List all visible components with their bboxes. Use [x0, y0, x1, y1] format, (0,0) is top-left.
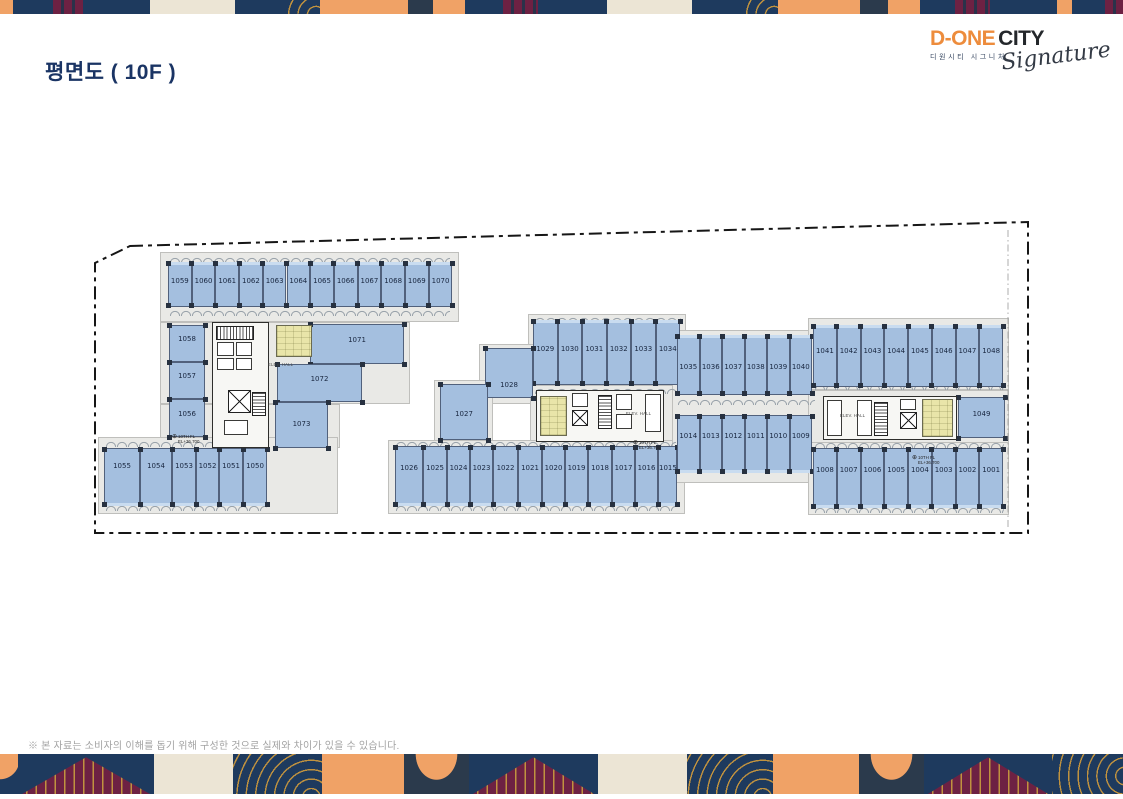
- column: [586, 502, 591, 507]
- unit-label: 1069: [406, 278, 428, 285]
- column: [675, 469, 680, 474]
- unit-label: 1059: [169, 278, 191, 285]
- level-marker: ⊕10TH FLEL+36.700: [912, 455, 958, 467]
- column: [858, 447, 863, 452]
- column: [953, 504, 958, 509]
- column: [653, 319, 658, 324]
- column: [170, 502, 175, 507]
- unit-1040: 1040: [790, 335, 813, 395]
- column: [421, 502, 426, 507]
- elevator-shaft: [572, 410, 588, 426]
- column: [450, 303, 455, 308]
- column: [167, 397, 172, 402]
- unit-label: 1061: [216, 278, 238, 285]
- unit-label: 1016: [636, 465, 657, 472]
- column: [656, 502, 661, 507]
- unit-1052: 1052: [196, 448, 219, 506]
- column: [810, 391, 815, 396]
- unit-1055: 1055: [104, 448, 140, 506]
- unit-label: 1042: [838, 348, 860, 355]
- unit-label: 1019: [566, 465, 587, 472]
- unit-1057: 1057: [169, 362, 205, 399]
- column: [260, 303, 265, 308]
- level-marker-text: 10TH FLEL+36.700: [639, 440, 660, 452]
- column: [882, 504, 887, 509]
- column: [167, 323, 172, 328]
- restroom: [922, 399, 953, 437]
- column: [929, 324, 934, 329]
- unit-label: 1027: [441, 411, 487, 418]
- unit-1026: 1026: [395, 446, 423, 506]
- unit-1017: 1017: [612, 446, 635, 506]
- column: [355, 261, 360, 266]
- unit-1067: 1067: [358, 262, 382, 307]
- column: [555, 319, 560, 324]
- column: [166, 303, 171, 308]
- unit-label: 1049: [959, 411, 1004, 418]
- unit-1031: 1031: [582, 320, 607, 385]
- elevator-shaft: [228, 390, 251, 413]
- core-room: [217, 342, 234, 356]
- column: [468, 502, 473, 507]
- column: [426, 261, 431, 266]
- column: [697, 414, 702, 419]
- column: [675, 334, 680, 339]
- column: [882, 447, 887, 452]
- column: [393, 445, 398, 450]
- unit-label: 1022: [494, 465, 517, 472]
- column: [906, 504, 911, 509]
- unit-label: 1007: [838, 467, 860, 474]
- unit-1019: 1019: [565, 446, 588, 506]
- unit-label: 1014: [678, 433, 699, 440]
- column: [765, 469, 770, 474]
- unit-1039: 1039: [767, 335, 790, 395]
- unit-1010: 1010: [767, 415, 790, 473]
- unit-1053: 1053: [172, 448, 196, 506]
- column: [811, 324, 816, 329]
- column: [468, 445, 473, 450]
- unit-label: 1070: [430, 278, 452, 285]
- unit-1056: 1056: [169, 399, 205, 437]
- core-room: [236, 342, 252, 356]
- unit-label: 1011: [746, 433, 767, 440]
- column: [953, 324, 958, 329]
- unit-label: 1002: [957, 467, 979, 474]
- unit-label: 1044: [885, 348, 907, 355]
- door-arcs: [678, 398, 815, 405]
- unit-label: 1048: [980, 348, 1002, 355]
- unit-label: 1040: [791, 364, 812, 371]
- column: [438, 438, 443, 443]
- column: [265, 502, 270, 507]
- unit-1018: 1018: [588, 446, 612, 506]
- unit-1013: 1013: [700, 415, 723, 473]
- column: [678, 319, 683, 324]
- column: [426, 303, 431, 308]
- column: [765, 391, 770, 396]
- column: [450, 261, 455, 266]
- column: [331, 303, 336, 308]
- stairs: [598, 395, 612, 429]
- restroom: [540, 396, 567, 436]
- unit-1030: 1030: [558, 320, 583, 385]
- column: [402, 362, 407, 367]
- column: [555, 381, 560, 386]
- unit-label: 1051: [220, 463, 242, 470]
- column: [355, 303, 360, 308]
- column: [906, 383, 911, 388]
- unit-1027: 1027: [440, 384, 488, 440]
- unit-1060: 1060: [192, 262, 216, 307]
- unit-label: 1023: [471, 465, 492, 472]
- unit-label: 1013: [701, 433, 722, 440]
- column: [194, 447, 199, 452]
- column: [237, 303, 242, 308]
- unit-label: 1058: [170, 336, 204, 343]
- column: [742, 334, 747, 339]
- unit-label: 1065: [311, 278, 333, 285]
- column: [720, 391, 725, 396]
- column: [787, 391, 792, 396]
- column: [438, 382, 443, 387]
- unit-label: 1035: [678, 364, 699, 371]
- column: [810, 414, 815, 419]
- unit-1005: 1005: [884, 448, 908, 508]
- unit-1023: 1023: [470, 446, 493, 506]
- unit-1050: 1050: [243, 448, 267, 506]
- unit-label: 1018: [589, 465, 611, 472]
- column: [720, 414, 725, 419]
- column: [445, 445, 450, 450]
- column: [260, 261, 265, 266]
- unit-label: 1026: [396, 465, 422, 472]
- unit-label: 1039: [768, 364, 789, 371]
- column: [720, 334, 725, 339]
- column: [697, 391, 702, 396]
- level-symbol-icon: ⊕: [912, 455, 917, 467]
- unit-1047: 1047: [956, 325, 980, 387]
- column: [331, 261, 336, 266]
- column: [516, 502, 521, 507]
- unit-label: 1036: [701, 364, 722, 371]
- column: [445, 502, 450, 507]
- unit-label: 1009: [791, 433, 812, 440]
- column: [929, 504, 934, 509]
- column: [516, 445, 521, 450]
- unit-1048: 1048: [979, 325, 1003, 387]
- unit-label: 1055: [105, 463, 139, 470]
- unit-1015: 1015: [658, 446, 677, 506]
- level-symbol-icon: ⊕: [633, 440, 638, 452]
- column: [834, 324, 839, 329]
- core-room: [224, 420, 248, 435]
- column: [486, 438, 491, 443]
- unit-label: 1025: [424, 465, 446, 472]
- unit-label: 1063: [264, 278, 286, 285]
- unit-1033: 1033: [631, 320, 656, 385]
- column: [360, 400, 365, 405]
- unit-label: 1020: [543, 465, 564, 472]
- disclaimer-note: ※ 본 자료는 소비자의 이해를 돕기 위해 구성한 것으로 실제와 차이가 있…: [28, 737, 400, 752]
- unit-1009: 1009: [790, 415, 813, 473]
- restroom: [276, 325, 312, 357]
- column: [811, 383, 816, 388]
- column: [1001, 504, 1006, 509]
- unit-label: 1066: [335, 278, 357, 285]
- unit-1064: 1064: [287, 262, 311, 307]
- unit-1068: 1068: [381, 262, 405, 307]
- unit-1011: 1011: [745, 415, 768, 473]
- unit-label: 1068: [382, 278, 404, 285]
- column: [308, 261, 313, 266]
- unit-1066: 1066: [334, 262, 358, 307]
- core-room: [616, 394, 632, 410]
- column: [284, 303, 289, 308]
- column: [604, 381, 609, 386]
- unit-1029: 1029: [533, 320, 558, 385]
- unit-label: 1033: [632, 346, 655, 353]
- column: [629, 381, 634, 386]
- column: [834, 383, 839, 388]
- column: [273, 400, 278, 405]
- core-room: [217, 358, 234, 370]
- unit-1008: 1008: [813, 448, 837, 508]
- unit-label: 1015: [659, 465, 676, 472]
- column: [1001, 324, 1006, 329]
- column: [811, 447, 816, 452]
- unit-1006: 1006: [861, 448, 885, 508]
- column: [237, 261, 242, 266]
- column: [953, 447, 958, 452]
- core-room: [236, 358, 252, 370]
- column: [834, 504, 839, 509]
- column: [102, 502, 107, 507]
- column: [787, 469, 792, 474]
- unit-label: 1037: [723, 364, 744, 371]
- column: [929, 383, 934, 388]
- column: [675, 502, 680, 507]
- unit-label: 1012: [723, 433, 744, 440]
- column: [483, 346, 488, 351]
- unit-label: 1038: [746, 364, 767, 371]
- column: [402, 322, 407, 327]
- column: [977, 383, 982, 388]
- unit-1070: 1070: [429, 262, 453, 307]
- column: [203, 397, 208, 402]
- column: [241, 502, 246, 507]
- unit-1016: 1016: [635, 446, 658, 506]
- unit-1036: 1036: [700, 335, 723, 395]
- unit-label: 1006: [862, 467, 884, 474]
- column: [167, 360, 172, 365]
- column: [697, 334, 702, 339]
- column: [720, 469, 725, 474]
- column: [653, 381, 658, 386]
- column: [403, 303, 408, 308]
- unit-1054: 1054: [140, 448, 172, 506]
- unit-label: 1024: [448, 465, 469, 472]
- level-marker-text: 10TH FLEL+36.700: [918, 455, 939, 467]
- unit-1043: 1043: [861, 325, 885, 387]
- unit-label: 1064: [288, 278, 310, 285]
- unit-label: 1057: [170, 373, 204, 380]
- unit-1001: 1001: [979, 448, 1003, 508]
- column: [787, 414, 792, 419]
- column: [308, 303, 313, 308]
- unit-1063: 1063: [263, 262, 287, 307]
- column: [326, 400, 331, 405]
- unit-label: 1043: [862, 348, 884, 355]
- level-marker-text: 10TH FLEL+36.700: [178, 434, 199, 446]
- unit-1020: 1020: [542, 446, 565, 506]
- column: [540, 502, 545, 507]
- column: [393, 502, 398, 507]
- unit-label: 1060: [193, 278, 215, 285]
- unit-label: 1004: [909, 467, 931, 474]
- floor-plan: 1059106010611062106310641065106610671068…: [0, 0, 1123, 794]
- core-room: [572, 393, 588, 407]
- unit-label: 1005: [885, 467, 907, 474]
- column: [540, 445, 545, 450]
- column: [563, 502, 568, 507]
- unit-1025: 1025: [423, 446, 447, 506]
- column: [360, 362, 365, 367]
- stairs: [252, 392, 266, 416]
- column: [213, 303, 218, 308]
- column: [742, 469, 747, 474]
- column: [421, 445, 426, 450]
- column: [1001, 447, 1006, 452]
- column: [765, 334, 770, 339]
- unit-1065: 1065: [310, 262, 334, 307]
- column: [604, 319, 609, 324]
- column: [138, 502, 143, 507]
- unit-label: 1050: [244, 463, 266, 470]
- unit-1021: 1021: [518, 446, 542, 506]
- column: [858, 324, 863, 329]
- column: [403, 261, 408, 266]
- column: [675, 414, 680, 419]
- unit-1038: 1038: [745, 335, 768, 395]
- column: [882, 324, 887, 329]
- elevator-shaft: [900, 412, 917, 429]
- unit-1002: 1002: [956, 448, 980, 508]
- unit-1059: 1059: [168, 262, 192, 307]
- unit-label: 1031: [583, 346, 606, 353]
- unit-1049: 1049: [958, 397, 1005, 438]
- column: [102, 447, 107, 452]
- column: [953, 383, 958, 388]
- column: [858, 504, 863, 509]
- unit-label: 1010: [768, 433, 789, 440]
- column: [213, 261, 218, 266]
- column: [189, 261, 194, 266]
- elevator-hall-label: ELEV. HALL: [840, 413, 880, 421]
- unit-1046: 1046: [932, 325, 956, 387]
- column: [610, 502, 615, 507]
- column: [906, 324, 911, 329]
- unit-1042: 1042: [837, 325, 861, 387]
- column: [379, 261, 384, 266]
- column: [491, 445, 496, 450]
- column: [882, 383, 887, 388]
- unit-label: 1056: [170, 411, 204, 418]
- unit-label: 1067: [359, 278, 381, 285]
- stairs: [216, 326, 254, 340]
- unit-label: 1047: [957, 348, 979, 355]
- unit-label: 1003: [933, 467, 955, 474]
- column: [742, 414, 747, 419]
- unit-1058: 1058: [169, 325, 205, 362]
- column: [742, 391, 747, 396]
- unit-1061: 1061: [215, 262, 239, 307]
- unit-label: 1062: [240, 278, 262, 285]
- unit-1045: 1045: [908, 325, 932, 387]
- column: [138, 447, 143, 452]
- unit-label: 1032: [608, 346, 631, 353]
- column: [491, 502, 496, 507]
- column: [170, 447, 175, 452]
- column: [629, 319, 634, 324]
- column: [166, 261, 171, 266]
- column: [326, 446, 331, 451]
- column: [906, 447, 911, 452]
- column: [1001, 383, 1006, 388]
- unit-label: 1021: [519, 465, 541, 472]
- unit-1044: 1044: [884, 325, 908, 387]
- elevator-hall-label: ELEV. HALL: [626, 411, 666, 419]
- column: [929, 447, 934, 452]
- unit-1041: 1041: [813, 325, 837, 387]
- column: [203, 360, 208, 365]
- unit-1071: 1071: [310, 324, 404, 364]
- unit-label: 1053: [173, 463, 195, 470]
- unit-label: 1071: [311, 337, 403, 344]
- column: [531, 346, 536, 351]
- column: [167, 435, 172, 440]
- column: [580, 319, 585, 324]
- column: [531, 396, 536, 401]
- unit-1007: 1007: [837, 448, 861, 508]
- column: [586, 445, 591, 450]
- column: [580, 381, 585, 386]
- unit-label: 1001: [980, 467, 1002, 474]
- column: [834, 447, 839, 452]
- column: [531, 319, 536, 324]
- unit-label: 1052: [197, 463, 218, 470]
- column: [765, 414, 770, 419]
- unit-1032: 1032: [607, 320, 632, 385]
- unit-label: 1054: [141, 463, 171, 470]
- unit-1069: 1069: [405, 262, 429, 307]
- column: [811, 504, 816, 509]
- column: [486, 382, 491, 387]
- unit-label: 1017: [613, 465, 634, 472]
- core-room: [900, 399, 916, 410]
- column: [697, 469, 702, 474]
- column: [1003, 436, 1008, 441]
- door-arcs: [170, 309, 450, 316]
- column: [189, 303, 194, 308]
- unit-label: 1045: [909, 348, 931, 355]
- column: [787, 334, 792, 339]
- unit-label: 1041: [814, 348, 836, 355]
- unit-1028: 1028: [485, 348, 533, 398]
- unit-1062: 1062: [239, 262, 263, 307]
- level-symbol-icon: ⊕: [172, 434, 177, 446]
- unit-1051: 1051: [219, 448, 243, 506]
